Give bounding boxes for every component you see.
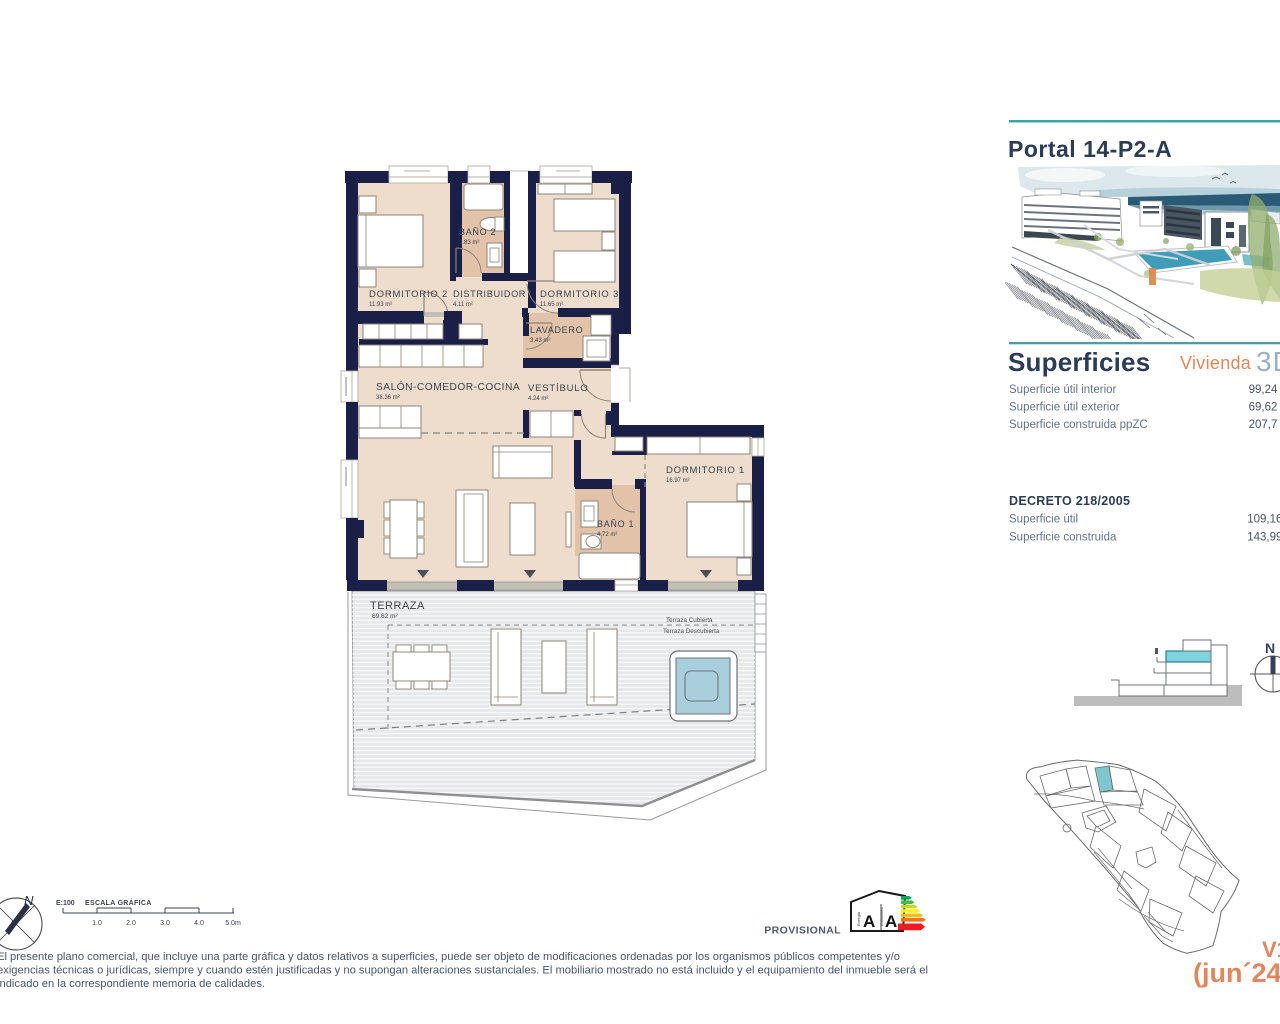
svg-text:A: A — [885, 912, 897, 931]
svg-text:TERRAZA: TERRAZA — [370, 600, 425, 612]
svg-text:5.0m: 5.0m — [225, 920, 241, 927]
svg-text:Superficie construida: Superficie construida — [1009, 532, 1117, 544]
svg-text:Terraza Cubierta: Terraza Cubierta — [666, 617, 713, 624]
svg-text:11.65 m²: 11.65 m² — [540, 302, 563, 308]
svg-text:ESCALA GRÁFICA: ESCALA GRÁFICA — [85, 898, 152, 907]
svg-text:VESTÍBULO: VESTÍBULO — [528, 383, 589, 394]
svg-text:DECRETO 218/2005: DECRETO 218/2005 — [1009, 494, 1130, 508]
svg-text:69.62 m²: 69.62 m² — [372, 613, 398, 620]
svg-text:Superficie construida ppZC: Superficie construida ppZC — [1009, 419, 1148, 431]
svg-text:38.36 m²: 38.36 m² — [376, 395, 400, 401]
svg-text:SALÓN-COMEDOR-COCINA: SALÓN-COMEDOR-COCINA — [376, 380, 520, 393]
svg-text:BAÑO 1: BAÑO 1 — [597, 519, 634, 529]
svg-text:4.72 m²: 4.72 m² — [597, 532, 617, 538]
svg-text:BAÑO 2: BAÑO 2 — [459, 227, 496, 237]
svg-text:A: A — [863, 912, 875, 931]
svg-text:Terraza Descubierta: Terraza Descubierta — [663, 628, 720, 635]
svg-text:DISTRIBUIDOR: DISTRIBUIDOR — [453, 289, 526, 299]
svg-text:El presente plano comercial, q: El presente plano comercial, que incluye… — [0, 951, 900, 963]
svg-text:PROVISIONAL: PROVISIONAL — [764, 925, 841, 937]
svg-text:1.0: 1.0 — [92, 920, 102, 927]
svg-text:LAVADERO: LAVADERO — [530, 325, 583, 335]
svg-text:N: N — [1265, 640, 1275, 656]
svg-text:Portal 14-P2-A: Portal 14-P2-A — [1008, 136, 1172, 162]
svg-text:69,62 m²: 69,62 m² — [1249, 402, 1280, 414]
svg-text:DORMITORIO 3: DORMITORIO 3 — [540, 289, 619, 300]
svg-text:3.43 m²: 3.43 m² — [530, 338, 550, 344]
svg-text:Emisiones: Emisiones — [879, 908, 884, 926]
svg-text:(jun´24): (jun´24) — [1193, 958, 1280, 988]
svg-text:109,16 m²: 109,16 m² — [1247, 514, 1280, 526]
svg-text:Superficies: Superficies — [1008, 347, 1150, 377]
svg-text:3.0: 3.0 — [160, 920, 170, 927]
svg-text:DORMITORIO 2: DORMITORIO 2 — [369, 289, 448, 300]
svg-text:indicado en la correspondiente: indicado en la correspondiente memoria d… — [0, 978, 265, 990]
svg-text:2.0: 2.0 — [126, 920, 136, 927]
svg-text:143,99 m²: 143,99 m² — [1247, 532, 1280, 544]
svg-text:DORMITORIO 1: DORMITORIO 1 — [666, 465, 745, 476]
svg-text:207,7 m²: 207,7 m² — [1249, 419, 1280, 431]
svg-text:99,24 m²: 99,24 m² — [1249, 384, 1280, 396]
svg-text:Vivienda: Vivienda — [1180, 353, 1252, 373]
svg-text:16.97 m²: 16.97 m² — [666, 478, 690, 484]
svg-text:Superficie útil interior: Superficie útil interior — [1009, 384, 1117, 396]
svg-text:E:100: E:100 — [56, 900, 75, 907]
svg-text:3D: 3D — [1256, 346, 1280, 377]
svg-text:Energía: Energía — [856, 911, 861, 926]
svg-text:4.0: 4.0 — [194, 920, 204, 927]
svg-text:Superficie útil exterior: Superficie útil exterior — [1009, 402, 1120, 414]
svg-text:4.24 m²: 4.24 m² — [528, 396, 548, 402]
svg-text:Superficie útil: Superficie útil — [1009, 514, 1078, 526]
svg-text:3.83 m²: 3.83 m² — [459, 240, 479, 246]
svg-text:exigencias técnicas o jurídica: exigencias técnicas o jurídicas, siempre… — [0, 965, 928, 977]
svg-text:N: N — [24, 893, 34, 908]
svg-text:4.11 m²: 4.11 m² — [453, 302, 473, 308]
svg-text:11.93 m²: 11.93 m² — [369, 302, 392, 308]
